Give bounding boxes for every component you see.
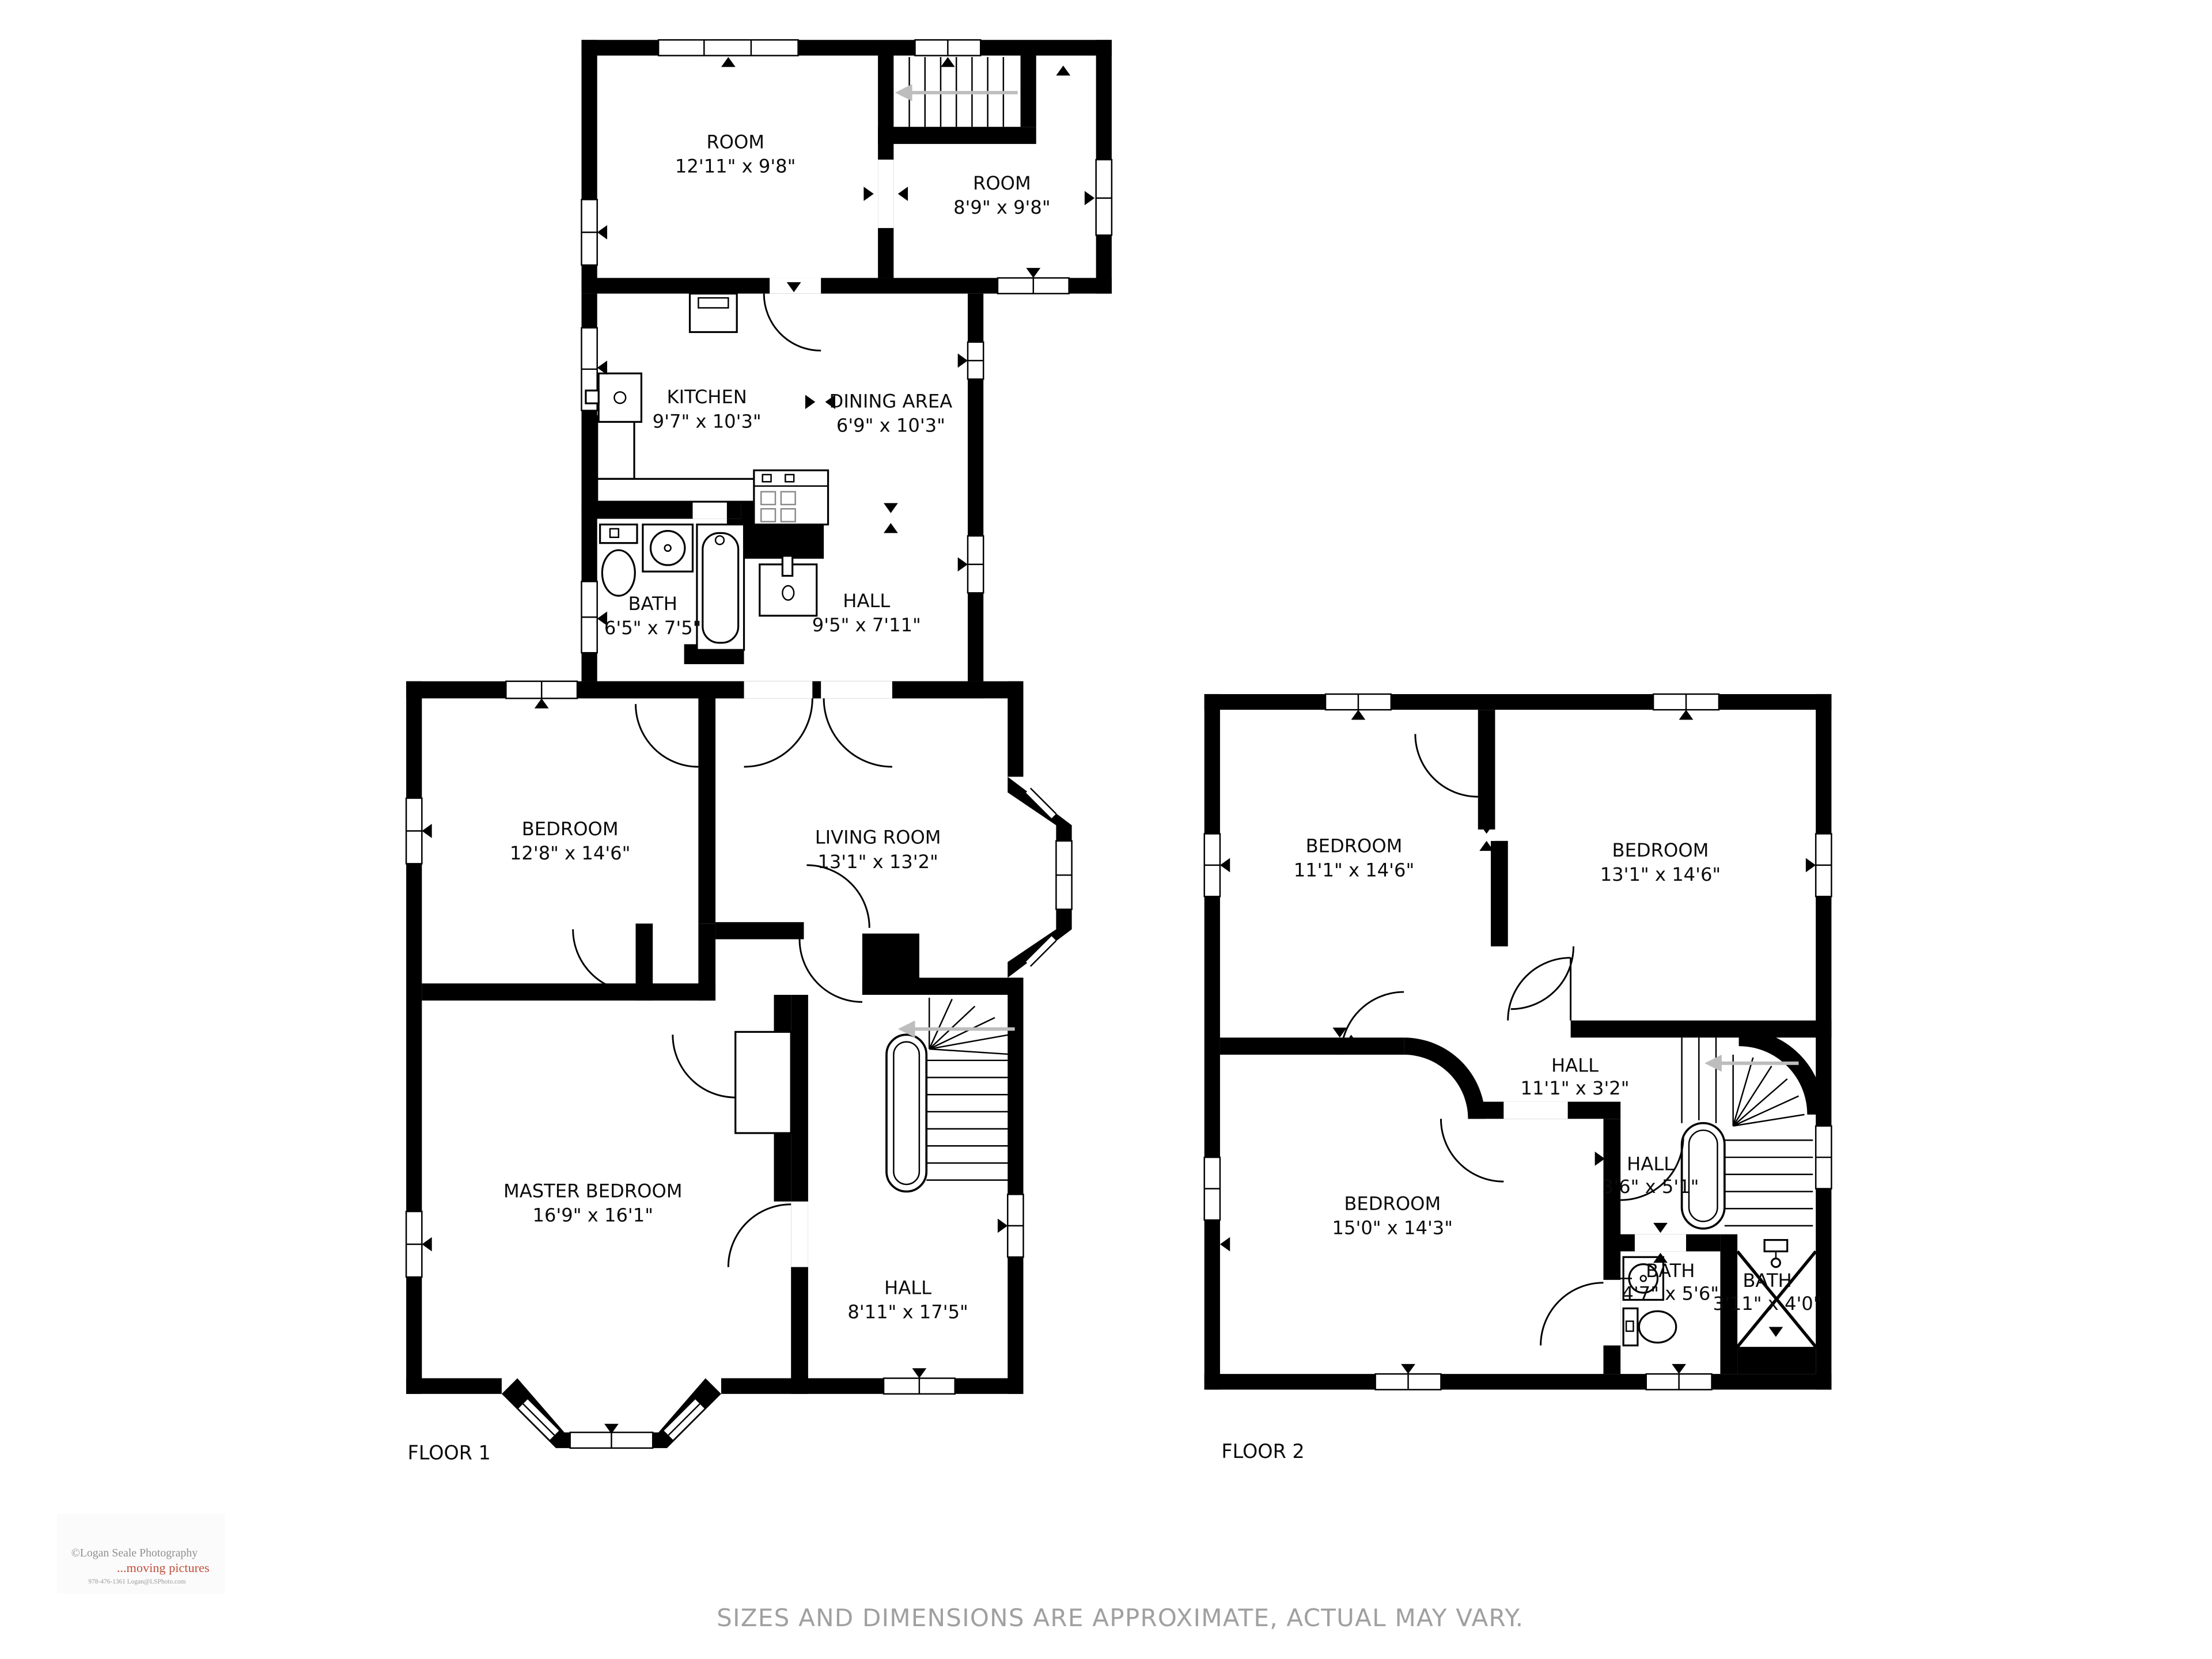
svg-text:4'7" x 5'6": 4'7" x 5'6" <box>1622 1282 1719 1304</box>
svg-text:9'5" x 7'11": 9'5" x 7'11" <box>812 614 921 636</box>
svg-text:BATH: BATH <box>1743 1270 1791 1291</box>
room-label-master-bedroom: MASTER BEDROOM16'9" x 16'1" <box>503 1180 683 1226</box>
svg-text:BEDROOM: BEDROOM <box>1344 1193 1441 1215</box>
window-icon <box>998 278 1069 293</box>
floor-plan-page: ROOM12'11" x 9'8" ROOM8'9" x 9'8" KITCHE… <box>0 0 2212 1659</box>
svg-text:6'9" x 10'3": 6'9" x 10'3" <box>836 415 945 437</box>
floor-plan-svg: ROOM12'11" x 9'8" ROOM8'9" x 9'8" KITCHE… <box>0 0 2212 1659</box>
svg-text:ROOM: ROOM <box>973 172 1031 194</box>
window-icon <box>570 1433 653 1448</box>
window-icon <box>406 798 422 864</box>
svg-text:15'0" x 14'3": 15'0" x 14'3" <box>1332 1217 1453 1239</box>
svg-text:HALL: HALL <box>1551 1055 1599 1077</box>
window-icon <box>1205 1157 1220 1220</box>
svg-text:3'11" x 4'0": 3'11" x 4'0" <box>1713 1293 1822 1315</box>
window-icon <box>1646 1374 1712 1389</box>
window-icon <box>658 40 798 55</box>
disclaimer-text: SIZES AND DIMENSIONS ARE APPROXIMATE, AC… <box>717 1604 1524 1632</box>
window-icon <box>406 1211 422 1277</box>
window-icon <box>915 40 980 55</box>
svg-text:HALL: HALL <box>884 1277 931 1299</box>
floor1-opening-markers <box>422 57 1094 1434</box>
svg-text:11'1" x 14'6": 11'1" x 14'6" <box>1294 859 1415 881</box>
svg-text:MASTER BEDROOM: MASTER BEDROOM <box>503 1180 683 1202</box>
svg-text:13'1" x 13'2": 13'1" x 13'2" <box>817 851 938 873</box>
svg-text:BEDROOM: BEDROOM <box>1306 835 1403 857</box>
svg-text:8'11" x 17'5": 8'11" x 17'5" <box>847 1301 968 1323</box>
watermark: ©Logan Seale Photography ...moving pictu… <box>57 1514 225 1594</box>
window-icon <box>1816 834 1831 896</box>
room-label-hall-stairs: HALL8'11" x 17'5" <box>847 1277 968 1323</box>
svg-text:HALL: HALL <box>843 590 890 612</box>
room-label-kitchen: KITCHEN9'7" x 10'3" <box>653 386 762 432</box>
window-icon <box>1653 694 1719 710</box>
svg-text:DINING AREA: DINING AREA <box>829 391 953 412</box>
svg-text:11'1" x 3'2": 11'1" x 3'2" <box>1521 1077 1630 1099</box>
svg-text:12'11" x 9'8": 12'11" x 9'8" <box>675 155 796 177</box>
floor1-label: FLOOR 1 <box>408 1442 491 1464</box>
svg-text:ROOM: ROOM <box>706 131 764 153</box>
svg-text:BEDROOM: BEDROOM <box>522 818 619 840</box>
watermark-line1: ©Logan Seale Photography <box>71 1547 198 1559</box>
bathtub-icon <box>697 525 744 650</box>
window-icon <box>581 199 597 265</box>
window-icon <box>1816 1126 1831 1189</box>
window-icon <box>581 581 597 653</box>
svg-text:12'8" x 14'6": 12'8" x 14'6" <box>510 842 631 864</box>
floor1-windows <box>406 40 1112 1448</box>
svg-text:13'1" x 14'6": 13'1" x 14'6" <box>1600 863 1721 885</box>
window-icon <box>1205 834 1220 896</box>
toilet-icon <box>1623 1308 1676 1345</box>
bath-sink-icon <box>643 525 693 572</box>
window-icon <box>1056 841 1071 910</box>
window-icon <box>1325 694 1391 710</box>
room-label-hall-111: HALL11'1" x 3'2" <box>1521 1055 1630 1100</box>
room-label-bedroom1: BEDROOM12'8" x 14'6" <box>510 818 631 864</box>
floor2-room-labels: BEDROOM11'1" x 14'6" BEDROOM13'1" x 14'6… <box>1294 835 1822 1315</box>
floor1-hall-stairs-icon <box>887 998 1016 1191</box>
room-label-dining-area: DINING AREA6'9" x 10'3" <box>829 391 953 437</box>
window-icon <box>968 342 983 379</box>
room-label-room2: ROOM8'9" x 9'8" <box>953 172 1051 218</box>
room-label-bedroom-111: BEDROOM11'1" x 14'6" <box>1294 835 1415 881</box>
svg-text:3'6" x 5'1": 3'6" x 5'1" <box>1602 1176 1699 1198</box>
room-label-hall1: HALL9'5" x 7'11" <box>812 590 921 636</box>
watermark-line2: ...moving pictures <box>117 1560 210 1575</box>
svg-text:BATH: BATH <box>1646 1260 1695 1282</box>
floor1-fixtures <box>586 294 828 650</box>
fridge-icon <box>690 294 737 332</box>
svg-text:9'7" x 10'3": 9'7" x 10'3" <box>653 410 762 432</box>
svg-text:BEDROOM: BEDROOM <box>1612 839 1709 861</box>
floor2-plan: BEDROOM11'1" x 14'6" BEDROOM13'1" x 14'6… <box>1205 694 1832 1463</box>
window-icon <box>884 1378 955 1394</box>
room-label-living-room: LIVING ROOM13'1" x 13'2" <box>815 827 941 873</box>
toilet-icon <box>600 525 637 596</box>
svg-text:8'9" x 9'8": 8'9" x 9'8" <box>953 196 1051 218</box>
svg-text:LIVING ROOM: LIVING ROOM <box>815 827 941 849</box>
stove-icon <box>754 470 828 524</box>
window-icon <box>1096 160 1112 235</box>
window-icon <box>968 536 983 593</box>
watermark-line3: 978-476-1361 Logan@LSPhoto.com <box>88 1578 185 1585</box>
floor2-label: FLOOR 2 <box>1221 1440 1304 1463</box>
room-label-bedroom-131: BEDROOM13'1" x 14'6" <box>1600 839 1721 885</box>
floor1-upper-stairs-icon <box>895 57 1018 127</box>
room-label-bath1: BATH6'5" x 7'5" <box>604 593 702 639</box>
svg-text:6'5" x 7'5": 6'5" x 7'5" <box>604 617 702 639</box>
floor2-walls <box>1205 694 1832 1389</box>
window-icon <box>506 681 577 699</box>
svg-text:BATH: BATH <box>628 593 677 615</box>
svg-text:16'9" x 16'1": 16'9" x 16'1" <box>533 1204 653 1226</box>
hall-sink-icon <box>760 556 817 616</box>
room-label-room1: ROOM12'11" x 9'8" <box>675 131 796 177</box>
floor1-walls <box>406 40 1112 1448</box>
window-icon <box>1007 1194 1023 1257</box>
floor1-plan: ROOM12'11" x 9'8" ROOM8'9" x 9'8" KITCHE… <box>406 40 1112 1464</box>
window-icon <box>1376 1374 1441 1389</box>
svg-text:KITCHEN: KITCHEN <box>667 386 747 408</box>
room-label-bedroom-150: BEDROOM15'0" x 14'3" <box>1332 1193 1453 1239</box>
svg-text:HALL: HALL <box>1627 1153 1674 1175</box>
